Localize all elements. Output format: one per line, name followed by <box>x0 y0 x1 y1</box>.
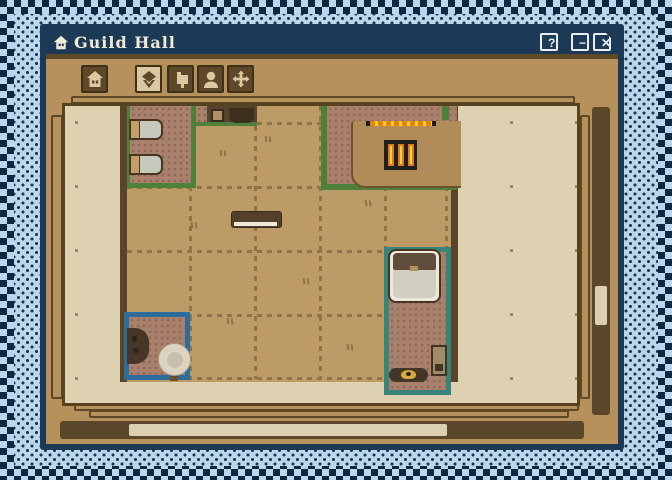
floor-dot <box>510 377 513 380</box>
horizontal-scrollbar[interactable] <box>60 421 584 439</box>
dark-counter[interactable] <box>207 106 257 126</box>
floor-dot <box>75 185 78 188</box>
floor-dot <box>510 185 513 188</box>
window-title: Guild Hall <box>74 33 176 52</box>
floor-dot <box>75 377 78 380</box>
furniture-icon <box>171 69 191 89</box>
furniture-tool-button[interactable] <box>167 65 194 93</box>
guild-hall-window: Guild Hall ? − ✕ <box>40 24 624 450</box>
help-button[interactable]: ? <box>540 33 558 51</box>
house-icon <box>53 35 69 50</box>
move-tool-button[interactable] <box>227 65 254 93</box>
home-tool-button[interactable] <box>81 65 108 93</box>
grid-line <box>254 106 257 379</box>
crate[interactable] <box>211 109 224 122</box>
map-frame-bottom-ledge-2 <box>89 410 569 418</box>
floor-dot <box>575 313 578 316</box>
room-top-left-annex <box>196 106 207 126</box>
map-frame-right-ledge <box>580 115 590 399</box>
minimize-button[interactable]: − <box>571 33 589 51</box>
blanket-latch <box>410 266 418 271</box>
close-button[interactable]: ✕ <box>593 33 611 51</box>
screen: { "window": { "title": "Guild Hall", "ti… <box>0 0 672 480</box>
floor-dot <box>575 377 578 380</box>
pet-mat[interactable] <box>389 368 428 382</box>
bench-table[interactable] <box>231 211 282 228</box>
titlebar-shadow <box>46 54 618 59</box>
vertical-scrollbar-thumb[interactable] <box>595 286 607 325</box>
floor-dot <box>75 249 78 252</box>
bed[interactable] <box>129 154 163 175</box>
titlebar[interactable]: Guild Hall ? − ✕ <box>46 30 618 54</box>
objects-tool-button[interactable] <box>135 65 162 93</box>
floor-dot <box>575 249 578 252</box>
floor-dot <box>75 121 78 124</box>
vertical-scrollbar[interactable] <box>592 107 610 415</box>
large-bed[interactable] <box>388 249 441 303</box>
grill[interactable] <box>384 140 417 170</box>
bed[interactable] <box>129 119 163 140</box>
people-tool-button[interactable] <box>197 65 224 93</box>
crate-slot <box>435 364 443 371</box>
food-bowl <box>401 370 416 379</box>
floor-dot <box>575 121 578 124</box>
floor-dot <box>510 121 513 124</box>
floor-dot <box>510 249 513 252</box>
floor-dot <box>510 313 513 316</box>
cauldron[interactable] <box>127 328 149 364</box>
hot-coals-strip <box>366 121 436 126</box>
cube-icon <box>139 69 159 89</box>
horizontal-scrollbar-thumb[interactable] <box>129 424 447 436</box>
room-top-right-corner <box>442 106 449 120</box>
move-arrows-icon <box>231 69 251 89</box>
round-table[interactable] <box>158 343 191 376</box>
pillow <box>131 156 140 173</box>
floor-dot <box>575 185 578 188</box>
counter-basin <box>229 108 254 123</box>
home-icon <box>85 69 105 89</box>
pillow <box>131 121 140 138</box>
crate[interactable] <box>431 345 447 376</box>
floor-dot <box>75 313 78 316</box>
person-icon <box>201 69 221 89</box>
map-viewport[interactable] <box>62 103 580 406</box>
